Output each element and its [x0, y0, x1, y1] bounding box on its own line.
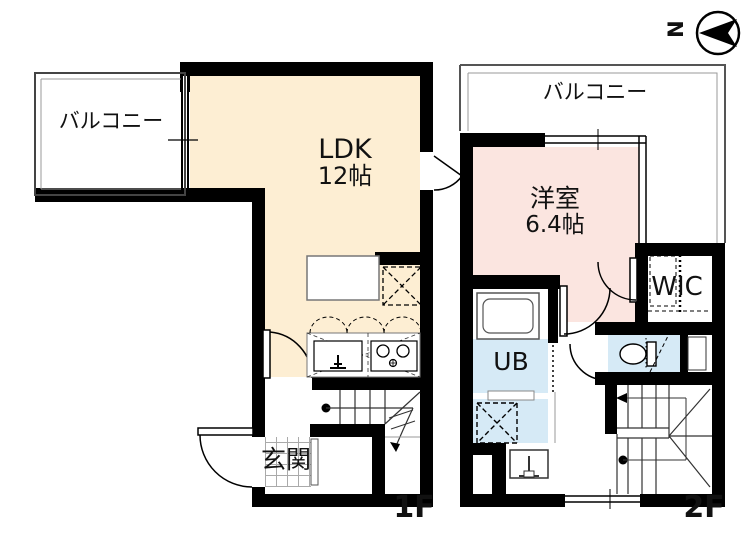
entrance-label: 玄関 [254, 447, 318, 473]
compass-north-label: N [665, 15, 687, 43]
entry-door-arc [198, 428, 253, 487]
kitchen-island [307, 256, 379, 300]
cabinet-arcs [310, 317, 421, 333]
unit-bath-label: UB [486, 349, 536, 375]
wic-label: WIC [645, 274, 709, 301]
washroom-threshold [488, 391, 534, 400]
door-arc-western-room [560, 286, 610, 336]
balcony-2f-label: バルコニー [528, 81, 662, 103]
kitchen-counter [307, 317, 421, 377]
floor-plan-canvas: バルコニー LDK 12帖 玄関 1F バルコニー 洋室 6.4帖 WIC UB… [0, 0, 750, 550]
ldk-size-label: 12帖 [275, 164, 415, 189]
ldk-label: LDK [275, 136, 415, 164]
western-room-size-label: 6.4帖 [495, 213, 615, 237]
toilet-niche [688, 337, 706, 370]
staircase-2f [616, 385, 712, 494]
washbasin-icon [510, 450, 548, 478]
door-arc-ldk [263, 330, 312, 378]
window-2f-south [565, 489, 640, 509]
floor1-label: 1F [391, 492, 437, 524]
balcony-1f-label: バルコニー [38, 110, 184, 132]
toilet-icon [620, 336, 668, 372]
compass [697, 12, 739, 54]
washing-machine-pan [477, 403, 517, 443]
door-arc-wic [598, 258, 637, 302]
door-arc-toilet [570, 344, 606, 380]
balcony-1f-outline [35, 73, 185, 195]
stove-icon [371, 341, 417, 371]
refrigerator-space [383, 267, 421, 305]
floor2-label: 2F [681, 492, 727, 524]
western-room-label: 洋室 [495, 186, 615, 212]
bathtub-icon [477, 293, 539, 339]
door-arc-service [420, 152, 462, 190]
staircase-1f [322, 390, 421, 452]
sink-icon [314, 341, 362, 371]
